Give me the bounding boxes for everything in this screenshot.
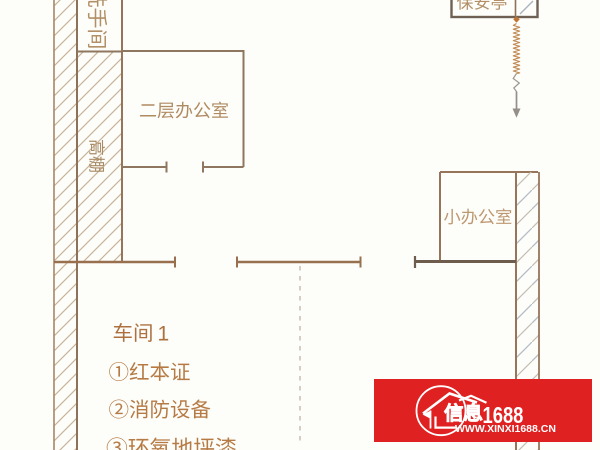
svg-text:1: 1 [158,323,170,346]
svg-text:WWW.XINXI1688.CN: WWW.XINXI1688.CN [455,423,556,435]
